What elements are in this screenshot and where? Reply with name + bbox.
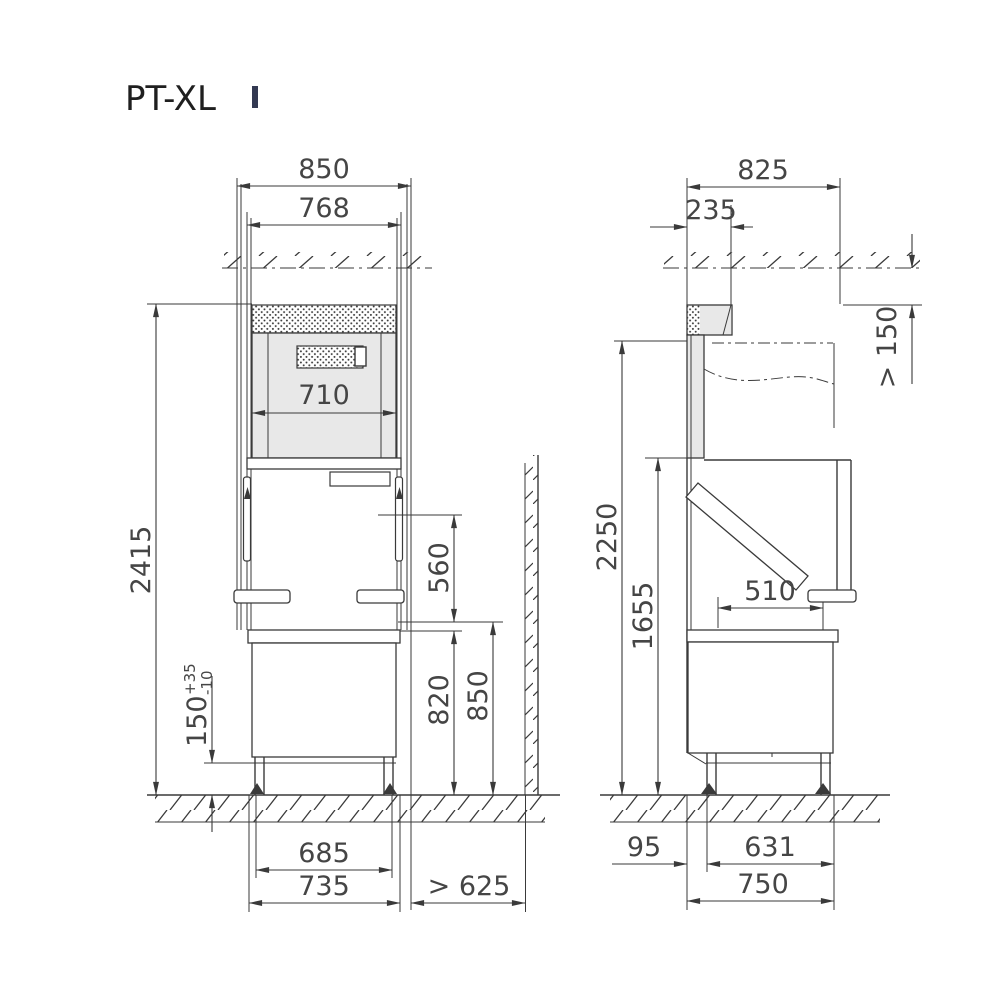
dim-side-front-offset: 95 [627, 832, 661, 863]
hood-front-column [687, 335, 704, 458]
dim-side-loading-height: 1655 [628, 582, 659, 651]
dim-table-opening-510: 510 [718, 576, 823, 630]
dim-side-top-front-depth: 235 [685, 195, 737, 226]
front-foot-pad [701, 783, 717, 794]
dim-open-height-2250: 2250 [592, 341, 687, 795]
title-cursor-artifact [252, 86, 258, 108]
cabinet-body [252, 643, 396, 757]
name-plate [330, 472, 390, 486]
floor-side [600, 795, 890, 822]
hood-latch [355, 347, 366, 366]
dim-side-base-depth: 750 [737, 869, 789, 900]
wash-chamber [234, 472, 404, 603]
dim-side-feet-spacing: 631 [744, 832, 796, 863]
dim-total-height-2415: 2415 [126, 304, 157, 795]
side-view: 825 235 > 150 [592, 155, 922, 910]
phantom-section [704, 343, 834, 428]
dim-top-front-depth-235: 235 [650, 195, 753, 305]
base-cabinet-front [248, 630, 400, 795]
floor-front [147, 795, 560, 822]
hood: 710 [247, 305, 401, 469]
dim-overall-width-850: 850 [237, 154, 411, 186]
hood-grille [297, 346, 363, 368]
dim-front-base-width: 735 [298, 871, 350, 902]
dim-foot-tolerance-plus: +35 [181, 663, 199, 695]
dim-table-height-850: 850 [463, 622, 494, 795]
side-wall [525, 455, 538, 795]
open-flap [686, 483, 808, 590]
right-foot-pad [383, 783, 397, 794]
right-table-bracket [357, 590, 404, 603]
dim-side-overall-depth: 825 [737, 155, 789, 186]
dim-rail-width-768: 768 [247, 193, 401, 225]
dim-front-rail-width: 768 [298, 193, 350, 224]
left-foot-pad [250, 783, 264, 794]
technical-drawing-page: PT-XL 850 768 [0, 0, 1000, 1000]
rear-foot-pad [815, 783, 831, 794]
dim-base-depth-750: 750 [687, 869, 834, 901]
hood-top-side [687, 305, 732, 458]
hood-bottom-rim [247, 458, 401, 469]
dim-front-counter-height: 820 [424, 674, 455, 726]
dim-side-table-opening: 510 [744, 576, 796, 607]
dim-front-feet-spacing: 685 [298, 838, 350, 869]
break-line [704, 369, 834, 384]
dim-front-total-height: 2415 [126, 526, 157, 595]
tank-rim-side [687, 630, 838, 642]
dim-front-passage-width: 710 [298, 380, 350, 411]
dim-front-overall-width: 850 [298, 154, 350, 185]
dim-foot-tolerance-minus: -10 [198, 671, 216, 696]
dim-counter-height-820: 820 [400, 631, 462, 795]
page-title: PT-XL [125, 79, 216, 119]
dim-side-open-height: 2250 [592, 503, 623, 572]
dishwasher-dimension-drawing: PT-XL 850 768 [0, 0, 1000, 1000]
tank-rim [248, 630, 400, 643]
dim-front-wall-clearance: > 625 [428, 871, 511, 902]
hood-vent-band [252, 305, 396, 333]
rear-table-bracket [808, 590, 856, 602]
base-cabinet-side [687, 630, 838, 795]
dim-side-ceiling-clearance: > 150 [872, 306, 903, 389]
ceiling-symbol-side [663, 252, 922, 268]
front-view: 850 768 710 [126, 154, 560, 912]
dim-overall-depth-825: 825 [687, 155, 840, 305]
cabinet-body-side [688, 642, 833, 753]
dim-front-hood-opening: 560 [424, 542, 455, 594]
dim-front-foot-height: 150 [182, 695, 213, 747]
dim-front-table-height: 850 [463, 670, 494, 722]
left-table-bracket [234, 590, 290, 603]
